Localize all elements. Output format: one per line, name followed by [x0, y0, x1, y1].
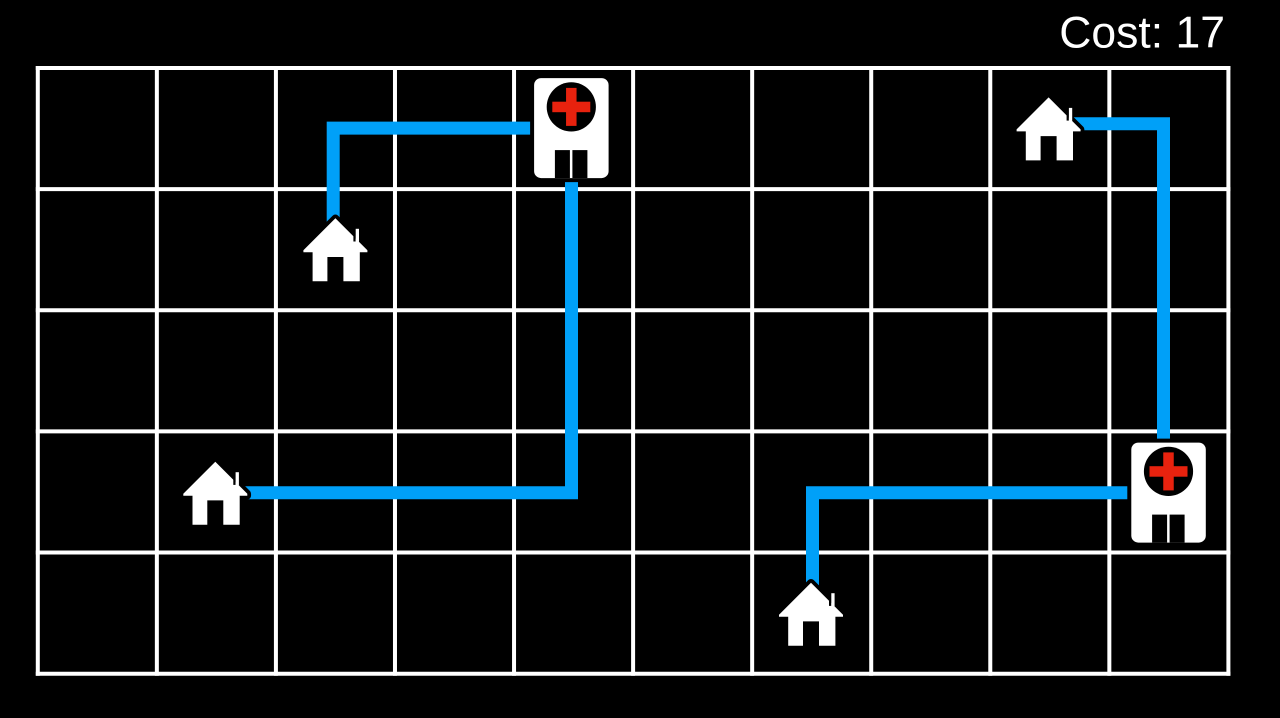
svg-text:Cost: 17: Cost: 17 [1059, 9, 1225, 58]
